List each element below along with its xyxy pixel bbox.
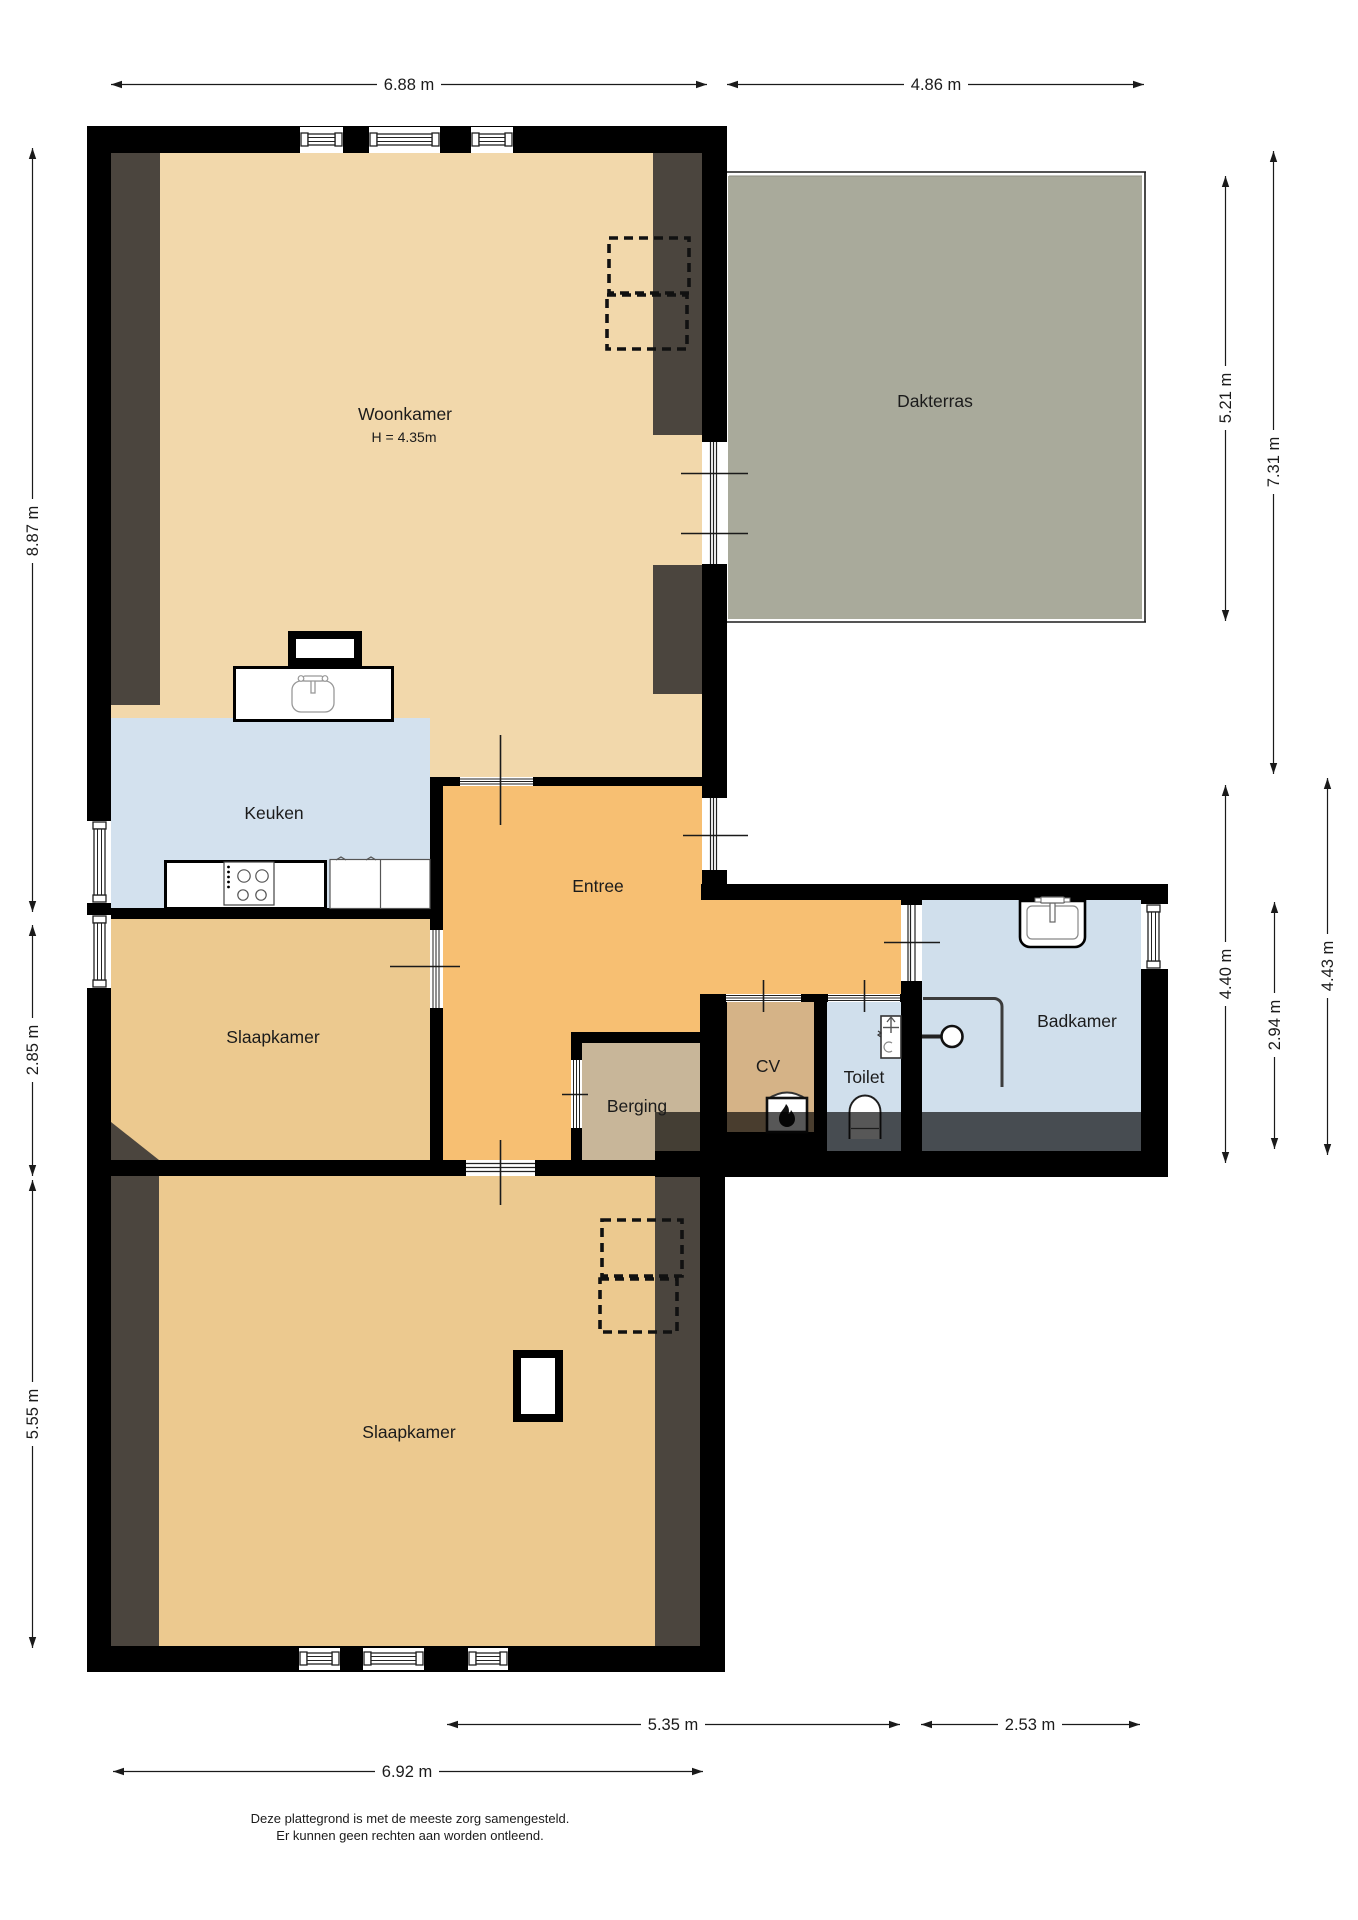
svg-text:8.87 m: 8.87 m [24,506,42,556]
svg-text:6.92 m: 6.92 m [382,1763,432,1781]
svg-text:5.21 m: 5.21 m [1217,373,1235,423]
svg-text:6.88 m: 6.88 m [384,76,434,94]
svg-text:5.55 m: 5.55 m [24,1389,42,1439]
svg-text:Er kunnen geen rechten aan wor: Er kunnen geen rechten aan worden ontlee… [276,1828,543,1843]
svg-text:Deze plattegrond is met de mee: Deze plattegrond is met de meeste zorg s… [251,1811,570,1826]
svg-text:2.94 m: 2.94 m [1266,1000,1284,1050]
svg-text:Berging: Berging [607,1096,667,1116]
svg-text:Badkamer: Badkamer [1037,1011,1117,1031]
svg-text:Toilet: Toilet [844,1067,885,1087]
svg-text:Woonkamer: Woonkamer [358,404,452,424]
svg-text:Keuken: Keuken [244,803,303,823]
svg-text:Slaapkamer: Slaapkamer [226,1027,320,1047]
svg-text:Slaapkamer: Slaapkamer [362,1422,456,1442]
svg-text:Entree: Entree [572,876,624,896]
svg-text:4.40 m: 4.40 m [1217,949,1235,999]
svg-text:7.31 m: 7.31 m [1265,437,1283,487]
svg-text:2.53 m: 2.53 m [1005,1716,1055,1734]
svg-text:4.43 m: 4.43 m [1319,941,1337,991]
svg-text:2.85 m: 2.85 m [24,1025,42,1075]
svg-text:5.35 m: 5.35 m [648,1716,698,1734]
svg-text:Dakterras: Dakterras [897,391,973,411]
svg-text:CV: CV [756,1056,781,1076]
svg-text:4.86 m: 4.86 m [911,76,961,94]
svg-text:H = 4.35m: H = 4.35m [372,429,437,445]
